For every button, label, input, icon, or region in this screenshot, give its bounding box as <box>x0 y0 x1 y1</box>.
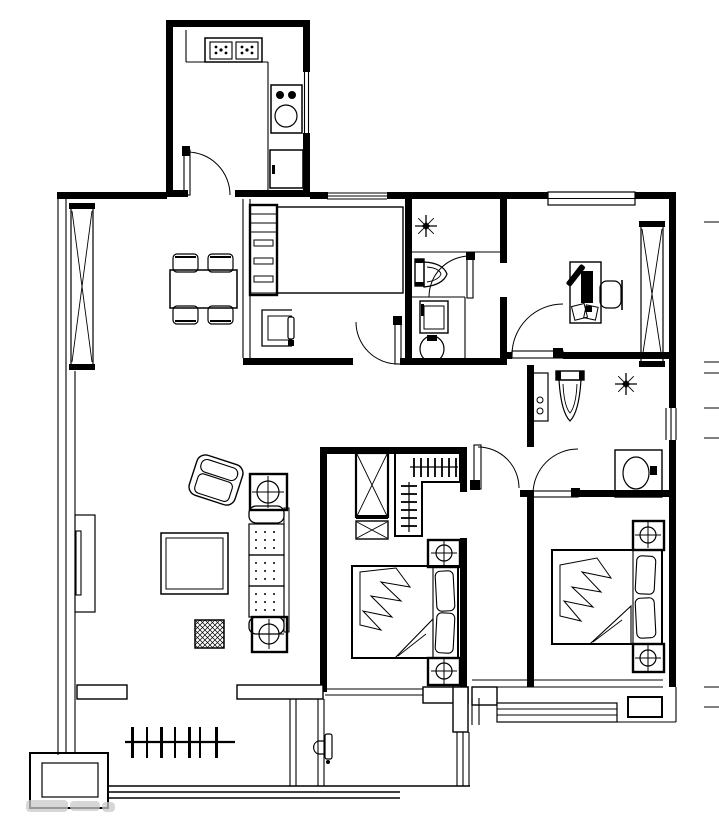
toilet2-bowl <box>559 380 581 421</box>
wall-living-south-east <box>237 685 323 699</box>
sofa-cushion-dots <box>255 562 257 564</box>
bed3-pillow <box>435 571 455 612</box>
sofa-cushion-dots <box>264 570 266 572</box>
balcony-faucet-spout <box>314 741 325 754</box>
mbath-basin <box>623 457 649 489</box>
kitchen-sink-tap-right <box>288 91 296 99</box>
suite-door-hinge <box>470 480 480 490</box>
sofa-cushion-dots <box>255 578 257 580</box>
mbath-cabinet-knob <box>537 397 543 403</box>
sofa-cushion-dots <box>255 547 257 549</box>
mbed-pillow <box>635 598 656 639</box>
wall-right-upper <box>669 192 676 408</box>
kitchen-cabinet-handle <box>272 165 275 174</box>
toilet1-tank <box>415 259 424 286</box>
closet-cabinet-divider <box>356 515 388 519</box>
bath1-door-leaf <box>467 256 473 298</box>
kitchen-door-leaf <box>184 150 190 195</box>
tv-cabinet <box>75 515 95 612</box>
sofa-cushion-dots <box>255 539 257 541</box>
washing-machine-mark <box>421 304 424 316</box>
toilet1-tank-cap <box>415 259 424 263</box>
toilet2-tank-cap <box>556 371 561 380</box>
wall-bed3-east-upper <box>460 447 467 492</box>
wall-top-a <box>57 192 167 199</box>
kitchen-sink-basin <box>275 105 297 127</box>
wardrobe-drawer <box>254 276 273 282</box>
kitchen-sink-tap-left <box>276 91 284 99</box>
wall-top-b <box>310 192 328 199</box>
sofa-cushion-dots <box>255 593 257 595</box>
study-chair <box>600 281 621 308</box>
stove-burner-center-right <box>245 48 248 51</box>
wall-kitchen-left <box>166 20 173 197</box>
stove-burner-dots <box>215 46 218 49</box>
wall-mbath-south-west <box>520 490 534 497</box>
sofa-cushion-dots <box>255 601 257 603</box>
window-x-left-cap-bottom <box>69 364 95 370</box>
window-x-study-cap-bottom <box>639 361 665 367</box>
study-monitor <box>581 271 593 303</box>
sofa-cushion-dots <box>264 547 266 549</box>
stove-burner-dots <box>251 52 254 55</box>
bed3-blanket <box>360 568 410 630</box>
bath1-door-arc <box>429 256 470 297</box>
bed2-door-hinge <box>393 316 402 325</box>
wall-bath1-east-lower <box>500 297 507 358</box>
window-x-study-cap-top <box>639 221 665 227</box>
drying-rack-bar <box>146 727 148 758</box>
coffee-table-inner <box>166 538 223 589</box>
wardrobe-drawer <box>254 258 273 264</box>
sofa-cushion-dots <box>273 547 275 549</box>
coffee-table <box>161 533 228 594</box>
wall-bed2-south-a <box>243 358 353 365</box>
kitchen-door-hinge <box>182 146 190 156</box>
watermark <box>70 801 100 811</box>
drying-rack-bar <box>188 727 191 758</box>
sofa-cushion-dots <box>264 562 266 564</box>
drying-rack-bar <box>160 727 163 758</box>
mbed-blanket-fold <box>590 606 631 644</box>
wall-kitchen-south-right <box>235 190 310 197</box>
mbath-basin-tap <box>650 466 657 475</box>
bed3-blanket-fold <box>395 619 433 658</box>
balcony-faucet-body <box>325 734 332 759</box>
drying-rack-bar <box>215 727 218 758</box>
wall-living-divider <box>320 447 327 692</box>
wall-study-south-joint <box>507 352 512 359</box>
mbed-blanket <box>560 558 611 621</box>
rug <box>195 620 224 648</box>
column-balcony-inner <box>42 763 98 797</box>
column-se <box>628 697 662 717</box>
sofa-cushion-dots <box>264 593 266 595</box>
balcony-faucet-drip <box>326 760 330 764</box>
sofa-cushion-dots <box>273 562 275 564</box>
sofa-cushion-dots <box>264 578 266 580</box>
wall-bath1-west <box>405 195 412 365</box>
bath1-basin-tap <box>427 335 437 341</box>
sofa-cushion-dots <box>273 601 275 603</box>
wall-bath1-east-upper <box>500 195 507 263</box>
sofa-cushion <box>249 555 284 586</box>
floor-plan-svg <box>0 0 719 835</box>
window-x-left-cap-top <box>69 203 95 209</box>
sofa-cushion-dots <box>273 531 275 533</box>
stove-burner-dots <box>251 46 254 49</box>
mbed-frame <box>552 550 662 644</box>
drying-rack-bar <box>199 727 201 758</box>
stove-burner-dots <box>215 52 218 55</box>
bed3-blanket-fold-line <box>398 634 426 656</box>
kitchen-door-arc <box>187 152 230 195</box>
mbath-door-hinge <box>571 488 580 497</box>
sofa-cushion-dots <box>273 593 275 595</box>
sofa-cushion-dots <box>273 609 275 611</box>
stove-burner-dots <box>241 52 244 55</box>
washing-machine-inner <box>424 306 444 329</box>
tv <box>76 531 81 595</box>
bed2-desk-chair <box>288 317 294 339</box>
bay-window-frame <box>497 703 617 722</box>
sofa-armrest-top <box>249 506 284 523</box>
toilet1-tank-cap <box>415 282 424 286</box>
sofa-cushion-dots <box>264 531 266 533</box>
suite-door-arc <box>478 447 519 488</box>
dining-table <box>170 270 237 308</box>
study-door-hinge <box>553 348 563 358</box>
wall-right-lower <box>669 440 676 687</box>
sofa-cushion-dots <box>264 539 266 541</box>
sofa-cushion-dots <box>255 609 257 611</box>
bed2-door-arc <box>356 322 398 364</box>
wall-living-south-west <box>77 685 127 699</box>
wall-mbed-west <box>527 497 534 687</box>
bed2-door-leaf <box>395 320 401 364</box>
wall-kitchen-top <box>166 20 310 27</box>
drying-rack-bar <box>131 727 134 758</box>
bed2-platform <box>277 207 403 293</box>
kitchen-sink <box>271 85 302 133</box>
drying-rack-bar <box>174 727 176 758</box>
stove-burner-dots <box>241 46 244 49</box>
mbed-blanket-fold-line <box>593 620 622 642</box>
wall-kitchen-right-lower <box>303 133 310 197</box>
wall-kitchen-south-left <box>166 190 188 197</box>
mbath-cabinet-knob <box>537 408 543 414</box>
wall-bath1-south <box>405 358 507 365</box>
sofa-cushion-dots <box>264 601 266 603</box>
wall-se-segment <box>472 687 497 705</box>
watermark <box>102 802 115 812</box>
sofa-cushion <box>249 524 284 555</box>
armchair-seat <box>193 473 233 503</box>
bed2-desk-chair-mark <box>288 340 294 346</box>
wardrobe-drawer <box>254 240 273 246</box>
toilet2-tank-cap <box>579 371 584 380</box>
study-door-arc <box>512 304 563 355</box>
stove-burner-center-left <box>219 48 222 51</box>
mbath-door-arc <box>533 449 578 494</box>
sofa-cushion-dots <box>273 539 275 541</box>
stove-burner-dots <box>225 46 228 49</box>
sofa-cushion-dots <box>255 531 257 533</box>
sofa-cushion <box>249 586 284 617</box>
toilet1-bowl-inner <box>427 267 441 282</box>
toilet2-bowl-inner <box>563 384 577 413</box>
sofa-back <box>284 508 289 632</box>
sofa-cushion-dots <box>255 570 257 572</box>
wall-balcony-right <box>453 687 468 732</box>
wall-kitchen-right-upper <box>303 20 310 72</box>
floor-plan <box>0 0 719 835</box>
mbed-pillow <box>635 556 656 595</box>
sofa-cushion-dots <box>273 578 275 580</box>
sofa-cushion-dots <box>264 609 266 611</box>
sofa-cushion-dots <box>273 570 275 572</box>
bed3-pillow <box>435 613 455 654</box>
wall-mbath-south-east <box>578 490 676 497</box>
watermark <box>26 800 68 812</box>
wall-study-south <box>563 352 669 359</box>
stove-burner-dots <box>225 52 228 55</box>
